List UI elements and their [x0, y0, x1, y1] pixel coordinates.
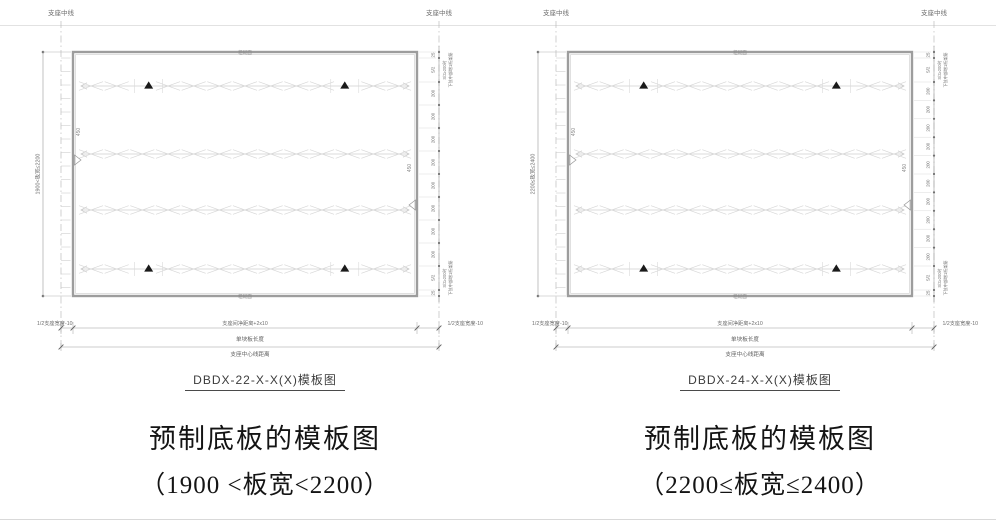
- slab-outline-inner: [571, 55, 910, 294]
- dim-dot: [438, 289, 440, 291]
- dim-dot: [438, 81, 440, 83]
- chain-dim-label: 200: [926, 234, 931, 242]
- note-label: S/2≥200时: [936, 60, 942, 79]
- caption-right: 预制底板的模板图 （2200≤板宽≤2400）: [530, 417, 990, 501]
- caption-line2: （2200≤板宽≤2400）: [530, 465, 990, 501]
- support-cl-distance-label: 支座中心线距离: [725, 350, 765, 358]
- lifting-anchor-icon: [340, 81, 349, 88]
- slab-outline-inner: [76, 55, 415, 294]
- dim-dot: [438, 242, 440, 244]
- clear-span-label: 支座间净距离+2x10: [222, 319, 268, 327]
- page-bottom-rule: [0, 519, 996, 520]
- truss-row: [79, 79, 411, 93]
- chain-dim-label: S/2: [431, 274, 436, 281]
- chain-dim-label: 200: [926, 253, 931, 261]
- truss-row: [79, 262, 411, 276]
- dim-dot: [438, 57, 440, 59]
- note-label: 下弦中部增1桁架筋: [447, 52, 453, 87]
- width-range-label: 2200≤板宽≤2400: [530, 154, 537, 195]
- formwork-drawing-right: 支座中线支座中线粗糙面粗糙面2200≤板宽≤240045045025S/2200…: [530, 0, 990, 368]
- lifting-anchor-icon: [639, 264, 648, 271]
- dim-dot: [933, 81, 935, 83]
- note-label: S/2≥200时: [441, 268, 447, 287]
- chain-dim-label: 200: [431, 204, 436, 212]
- half-support-label: 1/2支座宽度-10: [943, 319, 979, 327]
- dim-dot: [438, 173, 440, 175]
- board-length-label: 单块板长度: [731, 335, 759, 343]
- rough-surface-label: 粗糙面: [733, 293, 747, 300]
- truss-row: [574, 150, 906, 159]
- chain-dim-label: 25: [431, 52, 436, 57]
- edge-dim-label: 450: [902, 164, 908, 173]
- support-cl-distance-label: 支座中心线距离: [230, 350, 270, 358]
- chain-dim-label: 200: [431, 112, 436, 120]
- support-centerline-label: 支座中线: [543, 8, 570, 17]
- caption-left: 预制底板的模板图 （1900 <板宽<2200）: [35, 417, 495, 501]
- rough-surface-label: 粗糙面: [238, 293, 252, 300]
- note-label: S/2≥200时: [936, 268, 942, 287]
- drawing-title-text: DBDX-22-X-X(X)模板图: [185, 371, 345, 391]
- dim-dot: [933, 57, 935, 59]
- truss-row: [79, 150, 411, 159]
- drawing-title-right: DBDX-24-X-X(X)模板图: [530, 371, 990, 391]
- chain-dim-label: 200: [431, 181, 436, 189]
- dim-dot: [438, 104, 440, 106]
- dim-dot: [933, 191, 935, 193]
- board-length-label: 单块板长度: [236, 335, 264, 343]
- dim-dot: [438, 150, 440, 152]
- dim-dot: [933, 228, 935, 230]
- chain-dim-label: 200: [926, 179, 931, 187]
- dim-dot: [933, 289, 935, 291]
- dim-dot: [933, 210, 935, 212]
- dim-dot: [438, 127, 440, 129]
- formwork-drawing-left: 支座中线支座中线粗糙面粗糙面1900<板宽≤220045045025S/2200…: [35, 0, 495, 368]
- dim-dot: [438, 51, 440, 53]
- chain-dim-label: 200: [926, 216, 931, 224]
- chain-dim-label: 25: [431, 290, 436, 295]
- edge-dim-label: 450: [76, 128, 82, 137]
- truss-row: [79, 206, 411, 215]
- dim-dot: [933, 155, 935, 157]
- dim-dot: [933, 247, 935, 249]
- lifting-anchor-icon: [832, 264, 841, 271]
- note-label: 下弦中部增1桁架筋: [447, 260, 453, 295]
- lifting-anchor-icon: [144, 264, 153, 271]
- caption-line1: 预制底板的模板图: [530, 417, 990, 456]
- chain-dim-label: 200: [926, 87, 931, 95]
- truss-row: [574, 79, 906, 93]
- chain-dim-label: 200: [431, 89, 436, 97]
- lifting-anchor-icon: [639, 81, 648, 88]
- half-support-label: 1/2支座宽度-10: [532, 319, 568, 327]
- note-label: S/2≥200时: [441, 60, 447, 79]
- support-centerline-label: 支座中线: [921, 8, 948, 17]
- chain-dim-label: 25: [926, 290, 931, 295]
- dim-dot: [933, 51, 935, 53]
- note-label: 下弦中部增1桁架筋: [942, 260, 948, 295]
- rough-surface-label: 粗糙面: [238, 49, 252, 56]
- support-centerline-label: 支座中线: [426, 8, 453, 17]
- lifting-anchor-icon: [832, 81, 841, 88]
- chain-dim-label: 25: [926, 52, 931, 57]
- dim-dot: [438, 295, 440, 297]
- dim-dot: [933, 99, 935, 101]
- dim-dot: [933, 118, 935, 120]
- half-support-label: 1/2支座宽度-10: [448, 319, 484, 327]
- chain-dim-label: 200: [431, 135, 436, 143]
- dim-dot: [933, 265, 935, 267]
- edge-dim-label: 450: [571, 128, 577, 137]
- lifting-anchor-icon: [340, 264, 349, 271]
- panel-right: 支座中线支座中线粗糙面粗糙面2200≤板宽≤240045045025S/2200…: [530, 0, 990, 501]
- panel-left: 支座中线支座中线粗糙面粗糙面1900<板宽≤220045045025S/2200…: [35, 0, 495, 501]
- chain-dim-label: S/2: [926, 66, 931, 73]
- chain-dim-label: 200: [926, 197, 931, 205]
- drawing-title-left: DBDX-22-X-X(X)模板图: [35, 371, 495, 391]
- half-support-label: 1/2支座宽度-10: [37, 319, 73, 327]
- lifting-anchor-icon: [144, 81, 153, 88]
- chain-dim-label: 200: [926, 105, 931, 113]
- note-label: 下弦中部增1桁架筋: [942, 52, 948, 87]
- chain-dim-label: 200: [431, 227, 436, 235]
- dim-dot: [933, 173, 935, 175]
- caption-line2: （1900 <板宽<2200）: [35, 465, 495, 501]
- chain-dim-label: 200: [431, 158, 436, 166]
- dim-dot: [933, 295, 935, 297]
- dim-dot: [933, 136, 935, 138]
- clear-span-label: 支座间净距离+2x10: [717, 319, 763, 327]
- edge-dim-label: 450: [407, 164, 413, 173]
- chain-dim-label: S/2: [431, 66, 436, 73]
- dim-dot: [438, 265, 440, 267]
- dim-dot: [438, 196, 440, 198]
- truss-row: [574, 206, 906, 215]
- chain-dim-label: 200: [926, 124, 931, 132]
- truss-row: [574, 262, 906, 276]
- dim-dot: [438, 219, 440, 221]
- support-centerline-label: 支座中线: [48, 8, 75, 17]
- rough-surface-label: 粗糙面: [733, 49, 747, 56]
- width-range-label: 1900<板宽≤2200: [35, 154, 42, 195]
- chain-dim-label: 200: [926, 161, 931, 169]
- caption-line1: 预制底板的模板图: [35, 417, 495, 456]
- drawing-title-text: DBDX-24-X-X(X)模板图: [680, 371, 840, 391]
- chain-dim-label: 200: [431, 250, 436, 258]
- chain-dim-label: S/2: [926, 274, 931, 281]
- chain-dim-label: 200: [926, 142, 931, 150]
